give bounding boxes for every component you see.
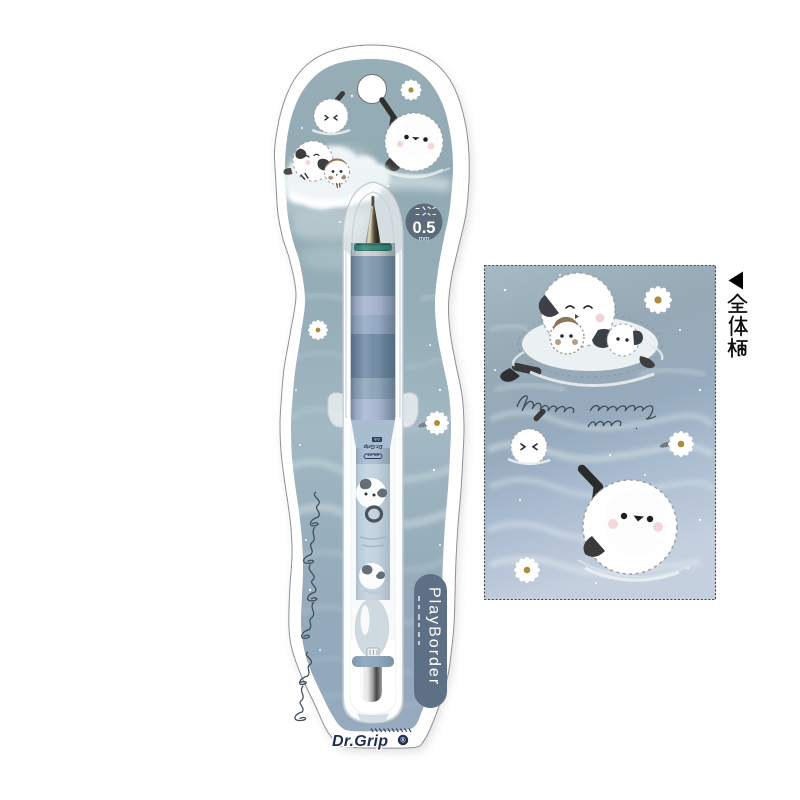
svg-text:Dr.Grip: Dr.Grip	[332, 733, 388, 750]
svg-text:PILOT: PILOT	[367, 453, 379, 458]
svg-text:mm: mm	[419, 236, 430, 243]
svg-text:PlayBorder: PlayBorder	[426, 587, 443, 686]
svg-text:0.5: 0.5	[373, 437, 379, 442]
svg-text:Dr.Grip: Dr.Grip	[363, 443, 383, 449]
svg-text:®: ®	[400, 737, 406, 745]
svg-text:0.5: 0.5	[413, 219, 436, 237]
